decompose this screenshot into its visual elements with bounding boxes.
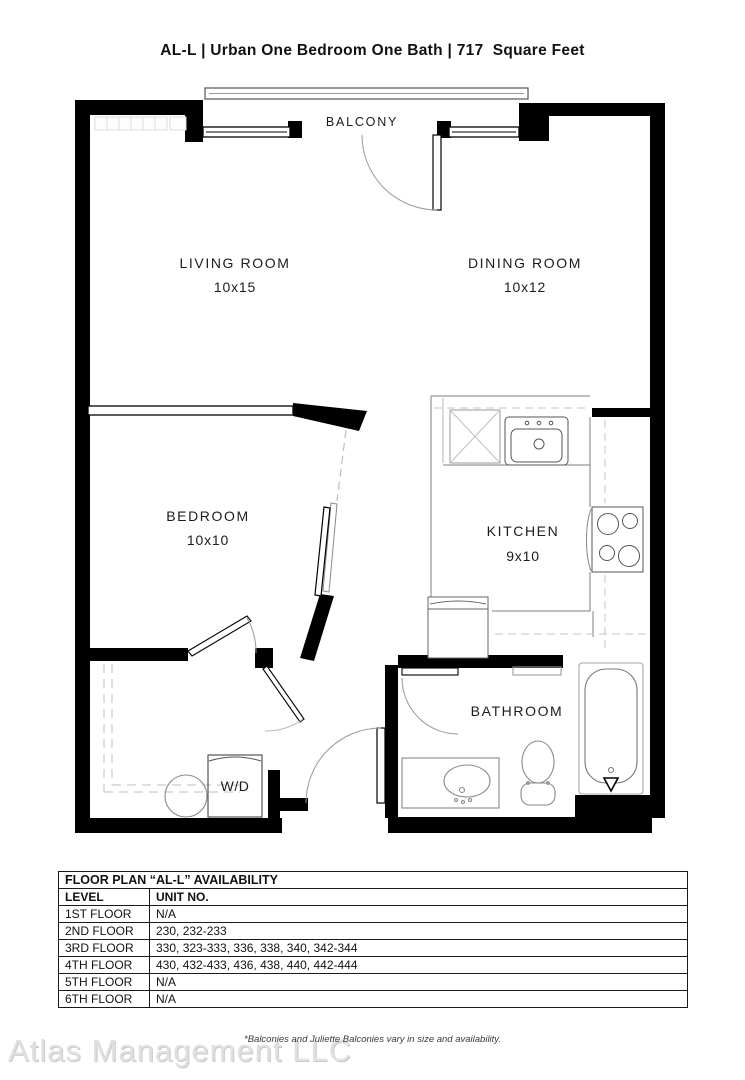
bedroom-dims: 10x10 <box>187 532 229 548</box>
kitchen-label: KITCHEN <box>487 523 560 539</box>
dining-room-dims: 10x12 <box>504 279 546 295</box>
wall-bathroom-corner <box>575 795 652 818</box>
units-cell: N/A <box>150 906 688 923</box>
wall-kitchen-dining <box>592 408 665 417</box>
kitchen-dims: 9x10 <box>506 548 540 564</box>
doors <box>188 135 458 803</box>
wall-post-c <box>255 648 273 668</box>
balcony-label: BALCONY <box>326 115 398 129</box>
level-cell: 6TH FLOOR <box>59 991 150 1008</box>
bedroom-label: BEDROOM <box>166 508 250 524</box>
bathroom-label: BATHROOM <box>471 703 564 719</box>
bedroom-sliding-door <box>315 430 346 596</box>
hall-door <box>263 666 304 731</box>
walls <box>75 100 665 833</box>
wall-top-left <box>75 100 187 115</box>
dishwasher <box>450 410 500 463</box>
wall-bottom-right <box>388 817 652 833</box>
table-row: 4TH FLOOR 430, 432-433, 436, 438, 440, 4… <box>59 957 688 974</box>
refrigerator <box>428 597 488 658</box>
living-room-dims: 10x15 <box>214 279 256 295</box>
table-row: 1ST FLOOR N/A <box>59 906 688 923</box>
table-row: 3RD FLOOR 330, 323-333, 336, 338, 340, 3… <box>59 940 688 957</box>
baseboard-heater <box>95 117 186 130</box>
bathroom-fixtures <box>402 663 643 808</box>
level-cell: 1ST FLOOR <box>59 906 150 923</box>
washer-dryer-label: W/D <box>221 778 250 794</box>
wall-top-left-step <box>185 100 203 142</box>
wall-entry-stub <box>272 798 308 811</box>
balcony-door <box>362 135 441 210</box>
floor-plan-page: AL-L | Urban One Bedroom One Bath | 717 … <box>0 0 745 1080</box>
door-arc <box>402 678 458 734</box>
units-cell: 330, 323-333, 336, 338, 340, 342-344 <box>150 940 688 957</box>
level-cell: 5TH FLOOR <box>59 974 150 991</box>
table-row: 2ND FLOOR 230, 232-233 <box>59 923 688 940</box>
column-header-unit-no: UNIT NO. <box>150 889 688 906</box>
level-cell: 2ND FLOOR <box>59 923 150 940</box>
level-cell: 4TH FLOOR <box>59 957 150 974</box>
kitchen-sink <box>505 417 568 465</box>
units-cell: N/A <box>150 991 688 1008</box>
wall-bedroom-diagonal <box>300 594 334 661</box>
availability-table: FLOOR PLAN “AL-L” AVAILABILITY LEVEL UNI… <box>58 871 688 1008</box>
wall-bathroom-left <box>385 665 398 818</box>
floor-plan-drawing: BALCONY LIVING ROOM 10x15 DINING ROOM 10… <box>0 0 745 860</box>
bathroom-shelf <box>513 667 561 675</box>
wall-top-right-step <box>519 116 549 141</box>
units-cell: N/A <box>150 974 688 991</box>
table-header-row: LEVEL UNIT NO. <box>59 889 688 906</box>
wall-left <box>75 100 90 833</box>
table-row: 6TH FLOOR N/A <box>59 991 688 1008</box>
entry-door <box>306 728 385 803</box>
door-arc <box>362 135 437 210</box>
closet-rod <box>104 664 240 792</box>
vanity-sink <box>402 758 499 808</box>
window-living <box>203 127 290 137</box>
stove <box>587 507 644 572</box>
closet-area <box>104 664 262 817</box>
room-labels: BALCONY LIVING ROOM 10x15 DINING ROOM 10… <box>166 115 582 794</box>
living-room-label: LIVING ROOM <box>180 255 291 271</box>
level-cell: 3RD FLOOR <box>59 940 150 957</box>
window-dining <box>449 127 519 137</box>
toilet <box>521 741 555 805</box>
table-title-row: FLOOR PLAN “AL-L” AVAILABILITY <box>59 872 688 889</box>
table-title: FLOOR PLAN “AL-L” AVAILABILITY <box>59 872 688 889</box>
tub-drain-arrow <box>604 778 618 791</box>
bathtub <box>579 663 643 794</box>
dining-room-label: DINING ROOM <box>468 255 582 271</box>
door-arc <box>265 719 303 731</box>
window-bedroom-partition <box>88 406 293 415</box>
wall-living-bedroom-taper <box>293 403 367 431</box>
wall-bedroom-bottom <box>88 648 188 661</box>
windows <box>88 127 519 415</box>
door-arc <box>306 728 381 803</box>
units-cell: 430, 432-433, 436, 438, 440, 442-444 <box>150 957 688 974</box>
units-cell: 230, 232-233 <box>150 923 688 940</box>
footnote: *Balconies and Juliette Balconies vary i… <box>0 1034 745 1045</box>
wall-bottom-left <box>75 818 282 833</box>
door-arc <box>247 618 256 653</box>
bathroom-door <box>402 668 458 734</box>
water-heater <box>165 775 207 817</box>
wall-right <box>650 103 665 818</box>
balcony-railing <box>205 88 528 99</box>
wall-top-right <box>519 103 665 116</box>
column-header-level: LEVEL <box>59 889 150 906</box>
table-row: 5TH FLOOR N/A <box>59 974 688 991</box>
bedroom-door <box>188 616 256 656</box>
